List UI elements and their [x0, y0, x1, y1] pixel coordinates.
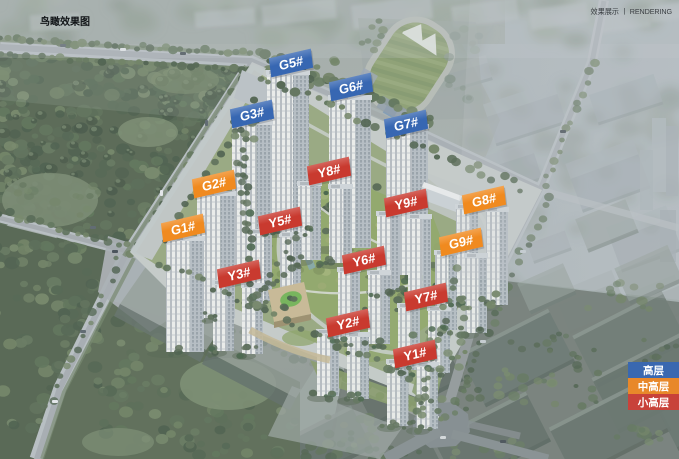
svg-text:高层: 高层 — [643, 364, 664, 377]
svg-text:鸟瞰效果图: 鸟瞰效果图 — [40, 15, 90, 28]
svg-text:小高层: 小高层 — [637, 396, 670, 409]
svg-text:中高层: 中高层 — [638, 380, 670, 393]
svg-text:效果展示 丨 RENDERING: 效果展示 丨 RENDERING — [591, 7, 673, 16]
